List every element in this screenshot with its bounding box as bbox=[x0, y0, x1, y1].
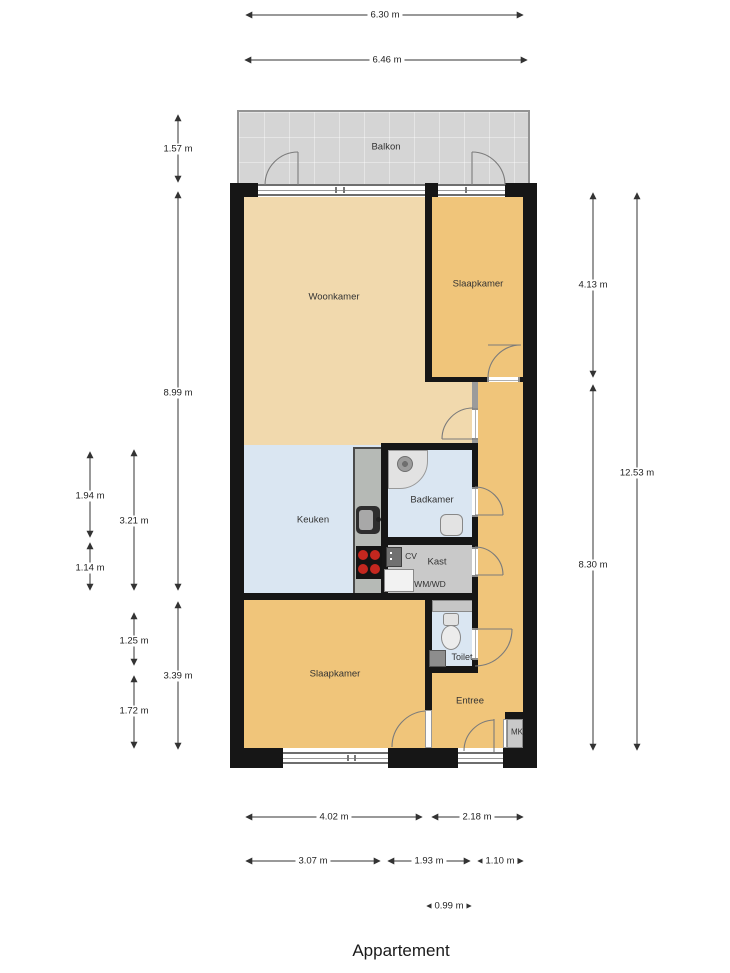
room-woonkamer bbox=[244, 197, 425, 445]
dim-label-left-321: 3.21 m bbox=[116, 516, 151, 527]
window-bottom bbox=[283, 752, 388, 764]
window-tick bbox=[335, 187, 337, 193]
dim-label-left-339: 3.39 m bbox=[160, 671, 195, 682]
kitchen-sink-basin bbox=[359, 510, 373, 530]
dim-label-top-2: 6.46 m bbox=[369, 55, 404, 66]
wall-bottom-seg2 bbox=[388, 748, 458, 768]
wall-slaapkamer-top-bottom-b bbox=[520, 377, 523, 382]
room-label-keuken: Keuken bbox=[297, 515, 329, 526]
window-tick bbox=[347, 755, 349, 761]
dim-label-left-172: 1.72 m bbox=[116, 706, 151, 717]
wall-bottom-seg3 bbox=[503, 748, 537, 768]
wall-top-seg2 bbox=[425, 183, 438, 197]
wall-hall-a bbox=[472, 443, 478, 487]
bathroom-sink bbox=[440, 514, 463, 536]
dim-label-bottom-110: 1.10 m bbox=[482, 856, 517, 867]
wall-woonkamer-slaapkamer bbox=[425, 197, 432, 382]
dim-label-left-157: 1.57 m bbox=[160, 144, 195, 155]
room-label-kast: Kast bbox=[427, 557, 446, 568]
room-hallway bbox=[478, 382, 523, 748]
door-opening-woonkamer bbox=[472, 408, 478, 440]
cv-unit bbox=[386, 547, 402, 567]
stove-fixture bbox=[356, 546, 382, 579]
dim-label-left-125: 1.25 m bbox=[116, 636, 151, 647]
wall-top-seg3 bbox=[505, 183, 537, 197]
room-label-badkamer: Badkamer bbox=[410, 495, 453, 506]
kitchen-sink bbox=[356, 506, 380, 534]
wall-hall-b bbox=[472, 517, 478, 547]
wall-left bbox=[230, 183, 244, 768]
dim-label-left-899: 8.99 m bbox=[160, 388, 195, 399]
dim-label-right-413: 4.13 m bbox=[575, 280, 610, 291]
cv-dot bbox=[390, 558, 392, 560]
window-tick bbox=[465, 187, 467, 193]
dim-label-right-1253: 12.53 m bbox=[617, 468, 657, 479]
window-top-right bbox=[438, 184, 505, 196]
dim-label-bottom-193: 1.93 m bbox=[411, 856, 446, 867]
burner-icon bbox=[370, 550, 380, 560]
wall-hall-c bbox=[472, 577, 478, 628]
room-label-cv: CV bbox=[405, 551, 417, 561]
front-door-threshold bbox=[458, 752, 503, 764]
burner-icon bbox=[370, 564, 380, 574]
wall-top-seg1 bbox=[230, 183, 258, 197]
duct-shaft bbox=[432, 600, 473, 612]
wall-keuken-bottom bbox=[244, 593, 478, 600]
toilet-bowl bbox=[441, 625, 461, 650]
wall-bottom-seg1 bbox=[230, 748, 283, 768]
room-woonkamer-ext bbox=[425, 382, 472, 443]
wall-partition-upper bbox=[472, 382, 478, 408]
room-label-entree: Entree bbox=[456, 696, 484, 707]
dim-label-bottom-402: 4.02 m bbox=[316, 812, 351, 823]
door-opening-kast bbox=[472, 547, 478, 577]
window-top-left bbox=[258, 184, 425, 196]
cv-dot bbox=[390, 552, 392, 554]
room-label-slaapkamer-top: Slaapkamer bbox=[453, 279, 504, 290]
door-opening-slaapkamer-top bbox=[487, 377, 520, 382]
wall-hall-d bbox=[472, 660, 478, 673]
toilet-sink bbox=[429, 650, 446, 667]
room-label-woonkamer: Woonkamer bbox=[308, 292, 359, 303]
window-tick bbox=[354, 755, 356, 761]
wall-right bbox=[523, 183, 537, 768]
room-label-slaapkamer-bottom: Slaapkamer bbox=[310, 669, 361, 680]
floorplan-canvas: Balkon Woonkamer Slaapkamer Keuken Badka… bbox=[0, 0, 730, 973]
wall-toilet-bottom bbox=[430, 666, 478, 673]
dim-label-left-194: 1.94 m bbox=[72, 491, 107, 502]
dim-label-bottom-099: 0.99 m bbox=[431, 901, 466, 912]
shower-head-icon bbox=[397, 456, 413, 472]
dim-label-left-114: 1.14 m bbox=[72, 563, 107, 574]
window-tick bbox=[343, 187, 345, 193]
burner-icon bbox=[358, 564, 368, 574]
door-leaf-slaapkamer-bottom bbox=[425, 710, 432, 748]
burner-icon bbox=[358, 550, 368, 560]
room-label-toilet: Toilet bbox=[451, 652, 472, 662]
mk-door-jamb bbox=[503, 719, 507, 748]
wall-badkamer-kast bbox=[381, 537, 478, 545]
wall-partition-lower bbox=[472, 440, 478, 443]
page-title: Appartement bbox=[352, 941, 449, 961]
room-label-wmwd: WM/WD bbox=[414, 579, 446, 589]
wall-mk-cap bbox=[505, 712, 523, 719]
room-label-mk: MK bbox=[511, 728, 523, 737]
dim-label-top-1: 6.30 m bbox=[367, 10, 402, 21]
room-entree bbox=[432, 673, 478, 748]
dim-label-bottom-218: 2.18 m bbox=[459, 812, 494, 823]
washer-unit bbox=[384, 569, 414, 592]
kitchen-faucet-icon bbox=[376, 517, 381, 522]
door-opening-badkamer bbox=[472, 487, 478, 517]
wall-badkamer-top bbox=[381, 443, 478, 450]
dim-label-bottom-307: 3.07 m bbox=[295, 856, 330, 867]
dim-label-right-830: 8.30 m bbox=[575, 560, 610, 571]
door-opening-toilet bbox=[472, 628, 478, 660]
room-label-balkon: Balkon bbox=[371, 142, 400, 153]
